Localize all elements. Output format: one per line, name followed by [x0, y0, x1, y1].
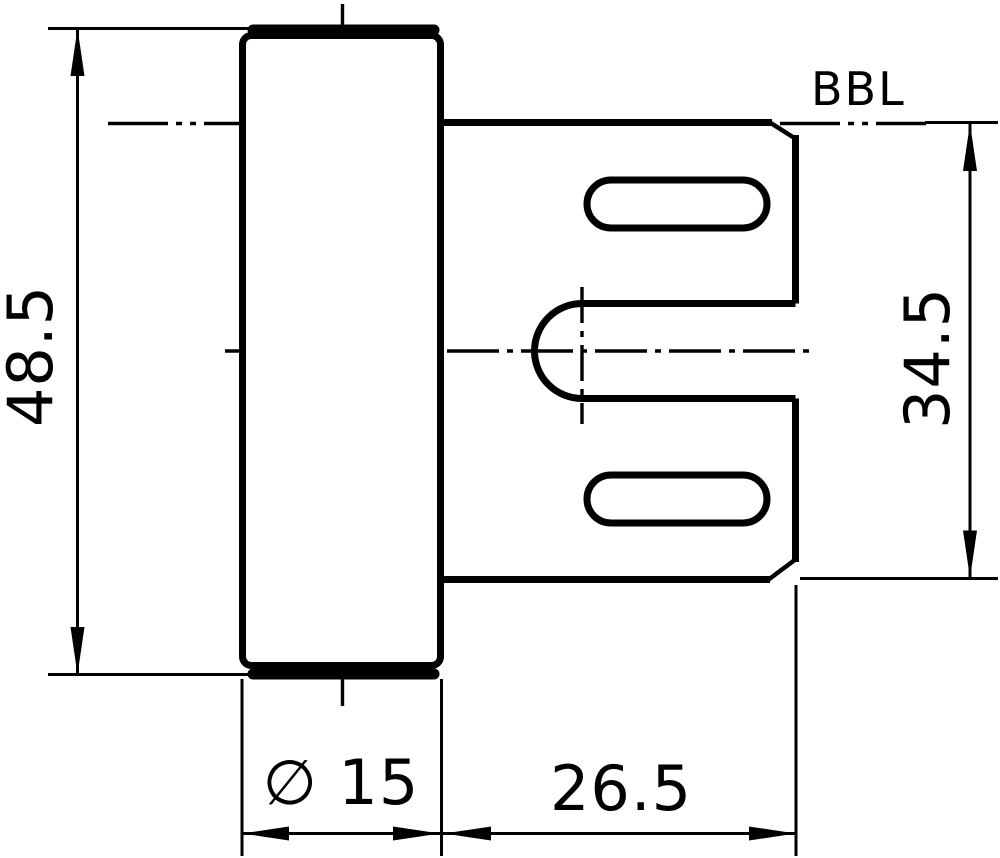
- dim-34-label: 34.5: [891, 287, 964, 429]
- dim-26-label: 26.5: [550, 752, 692, 825]
- bbl-reference-label: BBL: [811, 62, 906, 116]
- technical-drawing-canvas: 48.5 34.5 ∅ 15 26.5 BBL: [0, 0, 1000, 858]
- dim-48-label: 48.5: [0, 285, 67, 427]
- barrel-body: [243, 36, 441, 666]
- dim-15-label: ∅ 15: [263, 746, 420, 819]
- paper-background: [0, 0, 1000, 858]
- hinge-part-drawing: 48.5 34.5 ∅ 15 26.5 BBL: [0, 0, 1000, 858]
